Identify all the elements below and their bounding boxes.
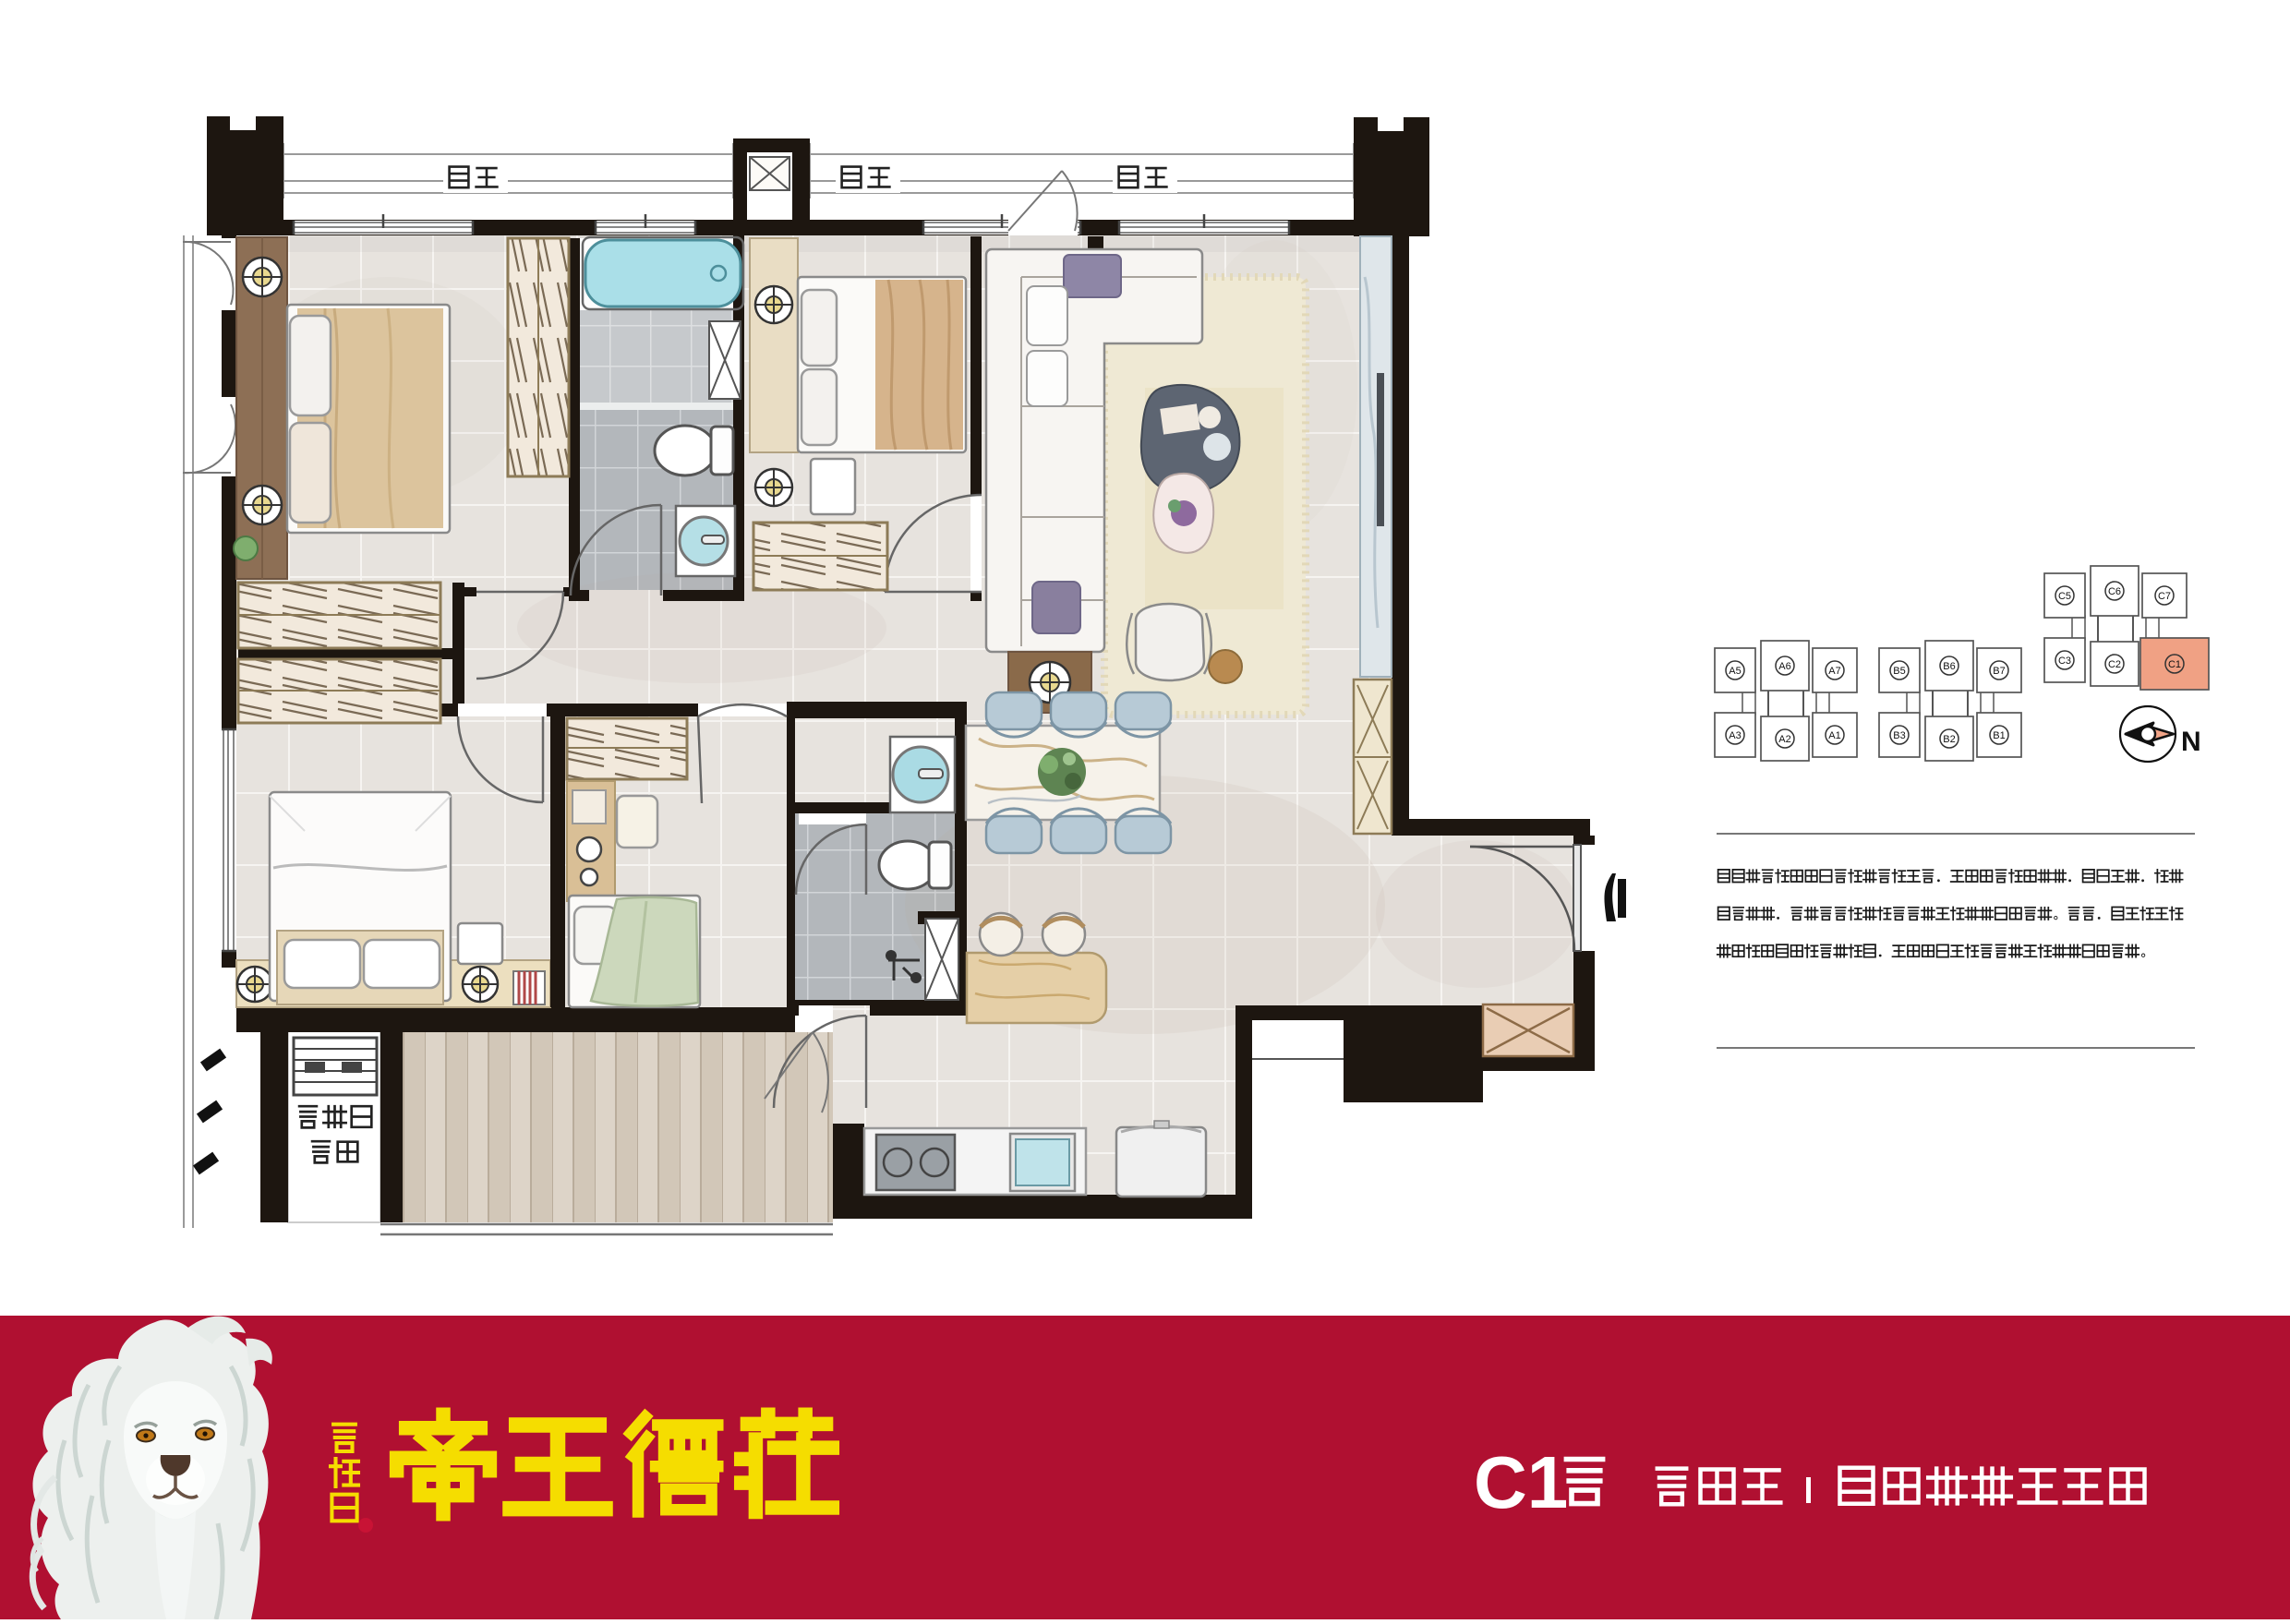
svg-text:A3: A3 — [1729, 730, 1741, 741]
svg-text:B7: B7 — [1993, 666, 2005, 677]
svg-text:C7: C7 — [2158, 591, 2171, 602]
svg-text:B5: B5 — [1893, 666, 1905, 677]
svg-text:C1: C1 — [1474, 1441, 1568, 1523]
svg-text:B2: B2 — [1943, 734, 1955, 745]
svg-text:A6: A6 — [1778, 661, 1790, 672]
svg-text:C3: C3 — [2058, 656, 2071, 667]
svg-text:B1: B1 — [1993, 730, 2005, 741]
svg-text:A1: A1 — [1828, 730, 1840, 741]
svg-text:B6: B6 — [1943, 661, 1955, 672]
svg-text:B3: B3 — [1893, 730, 1905, 741]
svg-text:A2: A2 — [1778, 734, 1790, 745]
svg-text:C6: C6 — [2108, 586, 2121, 597]
svg-text:A5: A5 — [1729, 666, 1741, 677]
svg-text:C5: C5 — [2058, 591, 2071, 602]
svg-text:C1: C1 — [2168, 659, 2181, 670]
svg-text:A7: A7 — [1828, 666, 1840, 677]
svg-text:C2: C2 — [2108, 659, 2121, 670]
svg-text:N: N — [2181, 727, 2201, 757]
